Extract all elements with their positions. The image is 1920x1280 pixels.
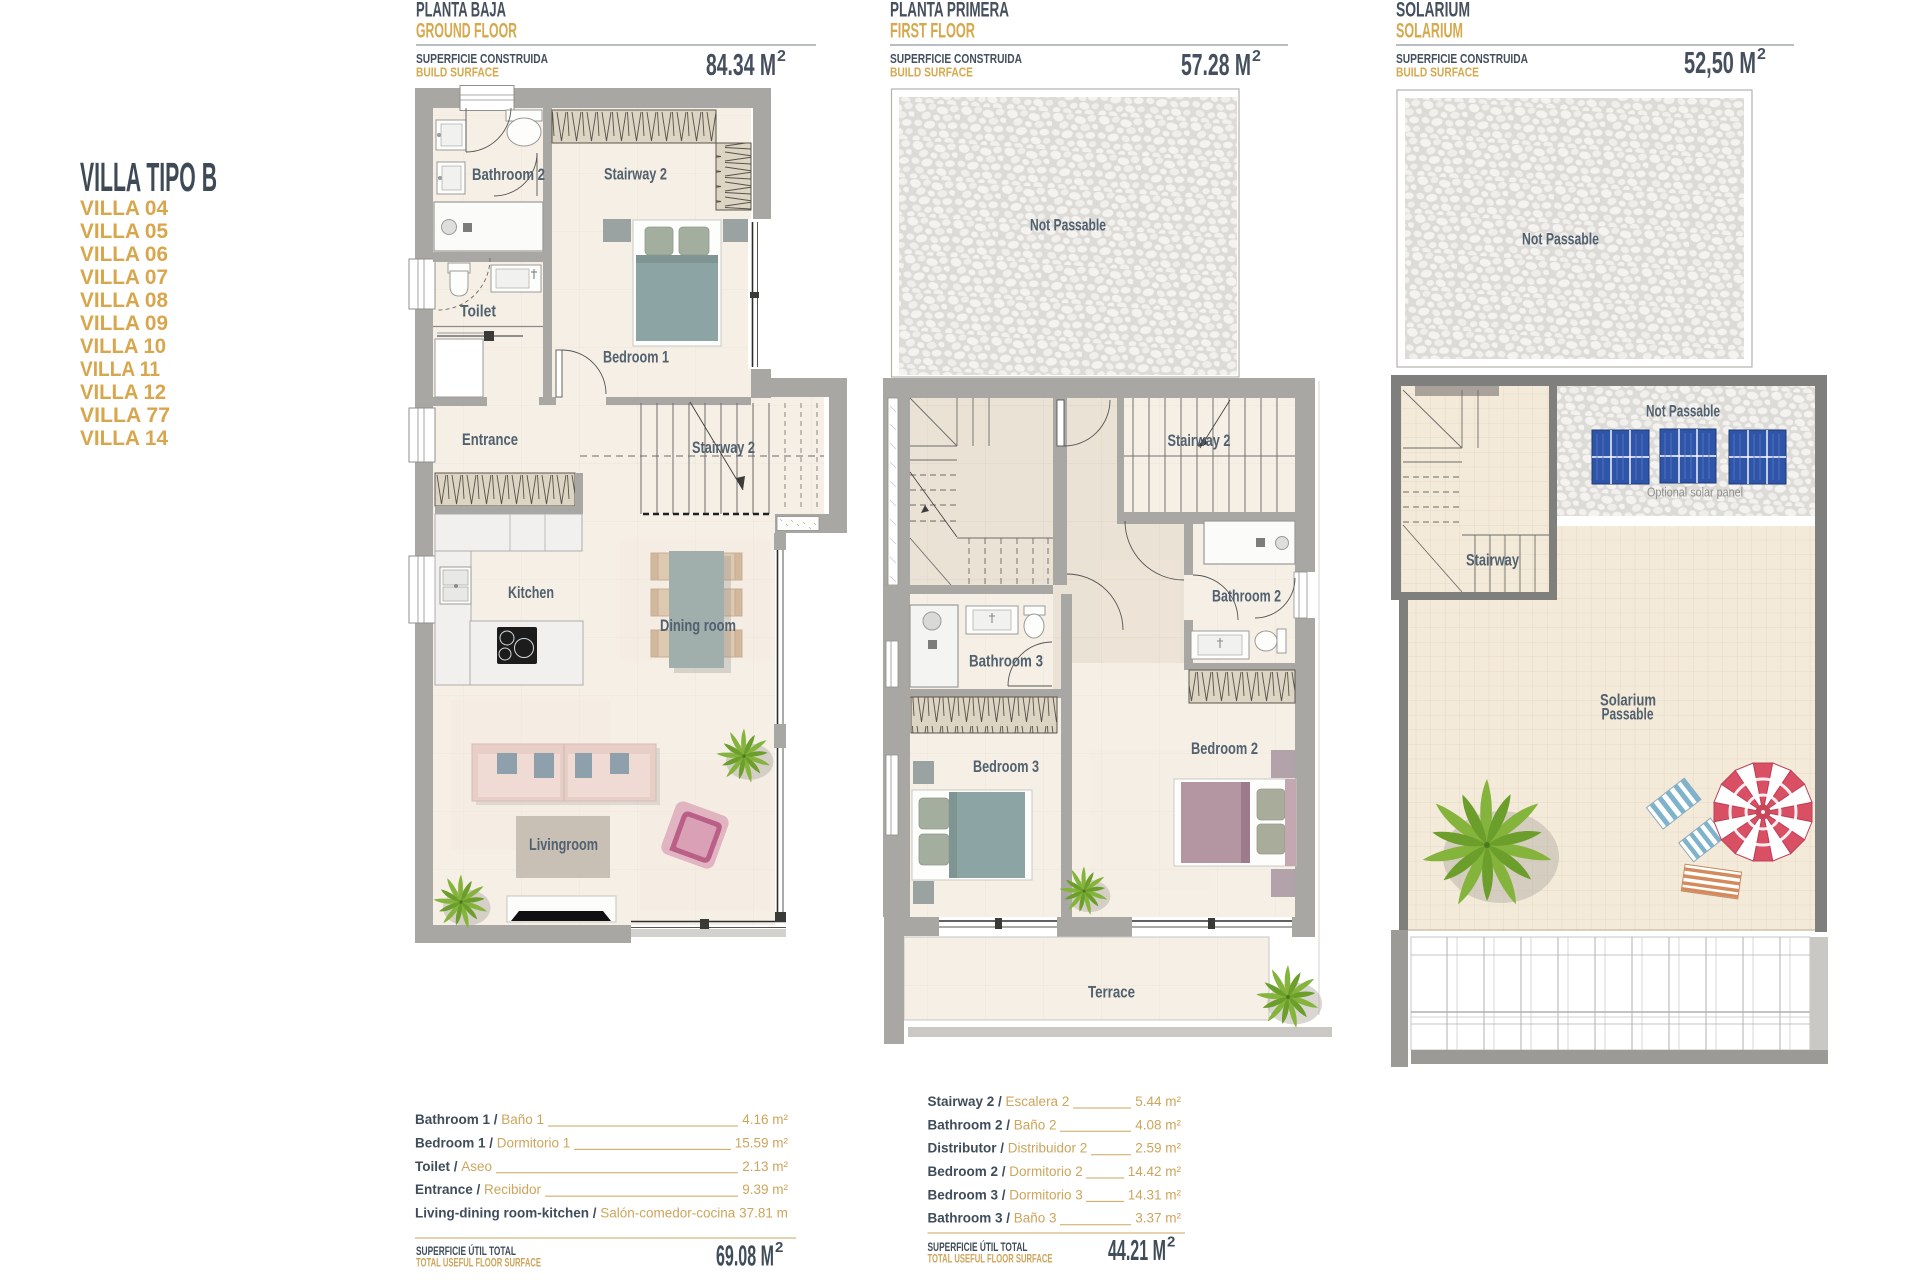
svg-text:Bathroom 3 / Baño 3: Bathroom 3 / Baño 3 xyxy=(928,1211,1057,1226)
svg-text:2: 2 xyxy=(1757,46,1766,63)
svg-text:BUILD SURFACE: BUILD SURFACE xyxy=(890,66,973,80)
svg-text:Bedroom 2 / Dormitorio 2: Bedroom 2 / Dormitorio 2 xyxy=(928,1164,1083,1179)
svg-text:Distributor / Distribuidor 2: Distributor / Distribuidor 2 xyxy=(928,1141,1088,1156)
svg-text:Entrance / Recibidor: Entrance / Recibidor xyxy=(415,1182,542,1197)
svg-text:Not Passable: Not Passable xyxy=(1646,402,1720,421)
svg-text:Stairway 2: Stairway 2 xyxy=(692,438,755,457)
svg-text:Bathroom 2: Bathroom 2 xyxy=(472,165,545,184)
svg-text:9.39 m²: 9.39 m² xyxy=(742,1182,788,1197)
svg-text:Stairway: Stairway xyxy=(1466,551,1519,570)
svg-text:2: 2 xyxy=(775,1239,783,1256)
svg-text:SOLARIUM: SOLARIUM xyxy=(1396,0,1470,22)
svg-text:VILLA TIPO B: VILLA TIPO B xyxy=(80,154,217,200)
svg-text:Toilet / Aseo: Toilet / Aseo xyxy=(415,1159,492,1174)
svg-text:2: 2 xyxy=(1167,1234,1175,1251)
svg-text:VILLA 08: VILLA 08 xyxy=(80,289,168,312)
svg-text:Terrace: Terrace xyxy=(1088,983,1135,1002)
svg-text:BUILD SURFACE: BUILD SURFACE xyxy=(1396,66,1479,80)
svg-text:14.31 m²: 14.31 m² xyxy=(1128,1187,1182,1202)
svg-text:5.44 m²: 5.44 m² xyxy=(1135,1094,1181,1109)
svg-text:Living-dining room-kitchen / S: Living-dining room-kitchen / Salón-comed… xyxy=(415,1206,788,1221)
svg-text:GROUND FLOOR: GROUND FLOOR xyxy=(416,20,517,43)
svg-text:4.08 m²: 4.08 m² xyxy=(1135,1117,1181,1132)
svg-text:Toilet: Toilet xyxy=(460,302,496,321)
svg-text:SUPERFICIE CONSTRUIDA: SUPERFICIE CONSTRUIDA xyxy=(1396,52,1528,66)
svg-text:TOTAL USEFUL FLOOR SURFACE: TOTAL USEFUL FLOOR SURFACE xyxy=(928,1254,1053,1266)
svg-text:2.13 m²: 2.13 m² xyxy=(742,1159,788,1174)
svg-text:Not Passable: Not Passable xyxy=(1522,230,1599,249)
svg-text:SUPERFICIE ÚTIL TOTAL: SUPERFICIE ÚTIL TOTAL xyxy=(416,1245,516,1258)
svg-text:Stairway 2 / Escalera 2: Stairway 2 / Escalera 2 xyxy=(928,1094,1070,1109)
svg-text:Bedroom 3: Bedroom 3 xyxy=(973,757,1039,776)
svg-text:Kitchen: Kitchen xyxy=(508,583,554,602)
svg-text:FIRST FLOOR: FIRST FLOOR xyxy=(890,20,975,43)
svg-text:TOTAL USEFUL FLOOR SURFACE: TOTAL USEFUL FLOOR SURFACE xyxy=(416,1258,541,1270)
svg-text:Optional solar panel: Optional solar panel xyxy=(1647,485,1743,500)
svg-text:VILLA 14: VILLA 14 xyxy=(80,427,168,450)
svg-text:BUILD SURFACE: BUILD SURFACE xyxy=(416,66,499,80)
svg-text:VILLA 11: VILLA 11 xyxy=(80,358,160,381)
svg-text:2: 2 xyxy=(1252,48,1261,65)
svg-text:52,50 M: 52,50 M xyxy=(1684,45,1756,80)
svg-text:Bedroom 3 / Dormitorio 3: Bedroom 3 / Dormitorio 3 xyxy=(928,1187,1083,1202)
svg-text:VILLA 05: VILLA 05 xyxy=(80,220,168,243)
svg-text:Bathroom 1 / Baño 1: Bathroom 1 / Baño 1 xyxy=(415,1112,544,1127)
svg-text:Bathroom 2 / Baño 2: Bathroom 2 / Baño 2 xyxy=(928,1117,1057,1132)
svg-text:SUPERFICIE CONSTRUIDA: SUPERFICIE CONSTRUIDA xyxy=(416,52,548,66)
svg-text:2.59 m²: 2.59 m² xyxy=(1135,1141,1181,1156)
svg-text:SUPERFICIE CONSTRUIDA: SUPERFICIE CONSTRUIDA xyxy=(890,52,1022,66)
svg-text:VILLA 04: VILLA 04 xyxy=(80,197,168,220)
svg-text:69.08 M: 69.08 M xyxy=(716,1241,774,1273)
svg-text:Not Passable: Not Passable xyxy=(1030,216,1106,235)
svg-text:PLANTA PRIMERA: PLANTA PRIMERA xyxy=(890,0,1009,22)
svg-text:SUPERFICIE ÚTIL TOTAL: SUPERFICIE ÚTIL TOTAL xyxy=(928,1241,1028,1254)
svg-text:Bedroom 1: Bedroom 1 xyxy=(603,348,669,367)
svg-text:14.42 m²: 14.42 m² xyxy=(1128,1164,1182,1179)
svg-text:15.59 m²: 15.59 m² xyxy=(735,1135,789,1150)
svg-text:Livingroom: Livingroom xyxy=(529,835,598,854)
svg-text:Stairway 2: Stairway 2 xyxy=(604,165,667,184)
svg-text:Bedroom 2: Bedroom 2 xyxy=(1191,739,1258,758)
svg-text:Bathroom 2: Bathroom 2 xyxy=(1212,587,1281,606)
svg-text:Passable: Passable xyxy=(1602,705,1654,724)
svg-text:VILLA 06: VILLA 06 xyxy=(80,243,168,266)
svg-text:2: 2 xyxy=(777,48,786,65)
svg-text:Bedroom 1 / Dormitorio 1: Bedroom 1 / Dormitorio 1 xyxy=(415,1135,570,1150)
svg-text:84.34 M: 84.34 M xyxy=(706,47,776,82)
svg-text:VILLA 09: VILLA 09 xyxy=(80,312,168,335)
svg-text:4.16 m²: 4.16 m² xyxy=(742,1112,788,1127)
svg-text:VILLA 12: VILLA 12 xyxy=(80,381,166,404)
svg-text:VILLA 10: VILLA 10 xyxy=(80,335,166,358)
svg-text:3.37 m²: 3.37 m² xyxy=(1135,1211,1181,1226)
svg-text:Entrance: Entrance xyxy=(462,430,518,449)
svg-text:SOLARIUM: SOLARIUM xyxy=(1396,20,1463,43)
svg-text:Dining room: Dining room xyxy=(660,616,736,635)
svg-text:Stairway 2: Stairway 2 xyxy=(1168,431,1231,450)
svg-text:PLANTA BAJA: PLANTA BAJA xyxy=(416,0,506,22)
svg-text:VILLA 77: VILLA 77 xyxy=(80,404,170,427)
svg-text:44.21 M: 44.21 M xyxy=(1108,1235,1166,1267)
svg-text:VILLA 07: VILLA 07 xyxy=(80,266,168,289)
svg-text:Bathroom 3: Bathroom 3 xyxy=(969,652,1043,671)
svg-text:57.28 M: 57.28 M xyxy=(1181,47,1251,82)
